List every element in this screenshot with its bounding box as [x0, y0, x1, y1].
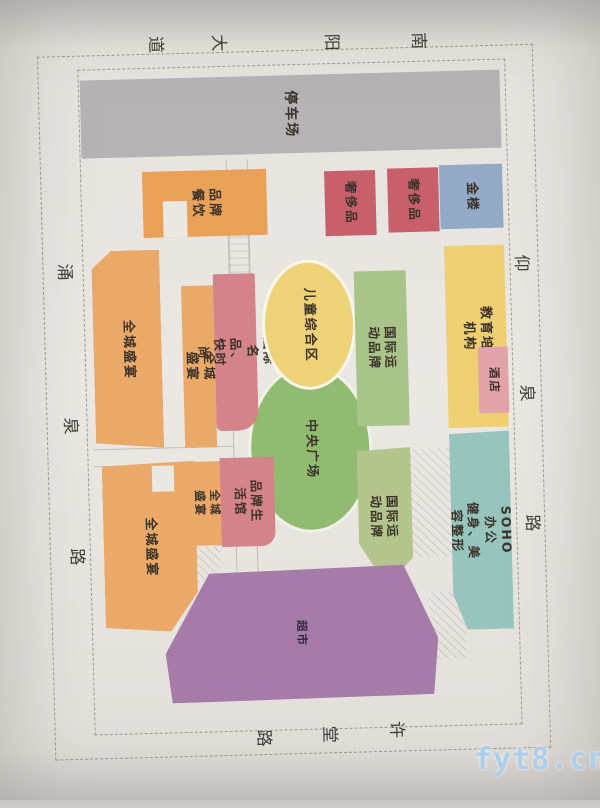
- street-left-name-char: 路: [66, 548, 91, 566]
- street-top-name-char: 大: [208, 34, 233, 52]
- block-intl-brands-fashion: 国际名品、快时尚: [213, 273, 259, 431]
- block-soho-label: SOHO办公 健身、美容整形: [448, 499, 515, 561]
- block-city-feast-1: 全城盛宴: [91, 250, 164, 450]
- block-luxury-1-label: 奢侈品: [342, 181, 359, 225]
- block-intl-sports-2-label: 国际运动品牌: [367, 488, 401, 546]
- street-left-name-char: 泉: [60, 417, 85, 435]
- block-supermarket: 超市: [162, 562, 439, 703]
- block-gold-house-label: 金楼: [462, 181, 480, 211]
- block-brand-dining-label: 品牌 餐饮: [188, 188, 223, 219]
- block-city-feast-3-label: 全城盛宴: [141, 517, 159, 577]
- block-brand-lifestyle: 品牌生活馆: [219, 457, 275, 547]
- block-city-feast-4-label: 全城盛宴: [192, 490, 223, 518]
- block-city-feast-4: 全城盛宴: [193, 461, 222, 546]
- block-kids-zone-label: 儿童综合区: [300, 287, 319, 362]
- block-parking: 停车场: [80, 70, 502, 159]
- street-top-name-char: 南: [408, 32, 433, 50]
- block-intl-sports-1: 国际运动品牌: [354, 270, 410, 426]
- road-hatch-1: [409, 448, 454, 557]
- block-city-feast-1-label: 全城盛宴: [118, 319, 136, 379]
- block-central-plaza-label: 中央广场: [301, 419, 319, 479]
- street-top-name-char: 阳: [321, 33, 346, 51]
- street-bottom-name-char: 许: [386, 721, 411, 739]
- block-luxury-1: 奢侈品: [324, 170, 377, 236]
- block-supermarket-label: 超市: [293, 619, 309, 646]
- block-brand-dining: 品牌 餐饮: [142, 169, 268, 238]
- block-luxury-2-label: 奢侈品: [405, 178, 422, 222]
- block-intl-sports-1-label: 国际运动品牌: [365, 322, 399, 375]
- site-plan-photo: 停车场 品牌 餐饮 奢侈品 奢侈品 金楼 全城盛宴 全城盛宴 国际名品、快时尚 …: [0, 0, 600, 808]
- street-top-name-char: 道: [145, 36, 170, 54]
- walkway-notch-1: [163, 201, 188, 238]
- block-parking-label: 停车场: [281, 90, 300, 138]
- walkway-notch-2: [152, 465, 175, 492]
- block-city-feast-3: 全城盛宴: [102, 461, 199, 633]
- block-gold-house: 金楼: [439, 164, 504, 230]
- street-right-name-char: 仰: [511, 254, 536, 272]
- street-left-name-char: 涌: [54, 263, 79, 281]
- block-brand-lifestyle-label: 品牌生活馆: [231, 474, 265, 529]
- block-hotel-label: 酒店: [486, 366, 502, 393]
- street-right-name-char: 泉: [516, 384, 541, 402]
- street-bottom-name-char: 堂: [319, 725, 344, 743]
- street-bottom-name-char: 路: [253, 729, 278, 747]
- block-soho: SOHO办公 健身、美容整形: [449, 431, 514, 631]
- block-hotel: 酒店: [478, 347, 510, 414]
- street-right-name-char: 路: [522, 514, 547, 532]
- block-luxury-2: 奢侈品: [387, 167, 440, 232]
- watermark: fyt8.cn: [474, 742, 600, 777]
